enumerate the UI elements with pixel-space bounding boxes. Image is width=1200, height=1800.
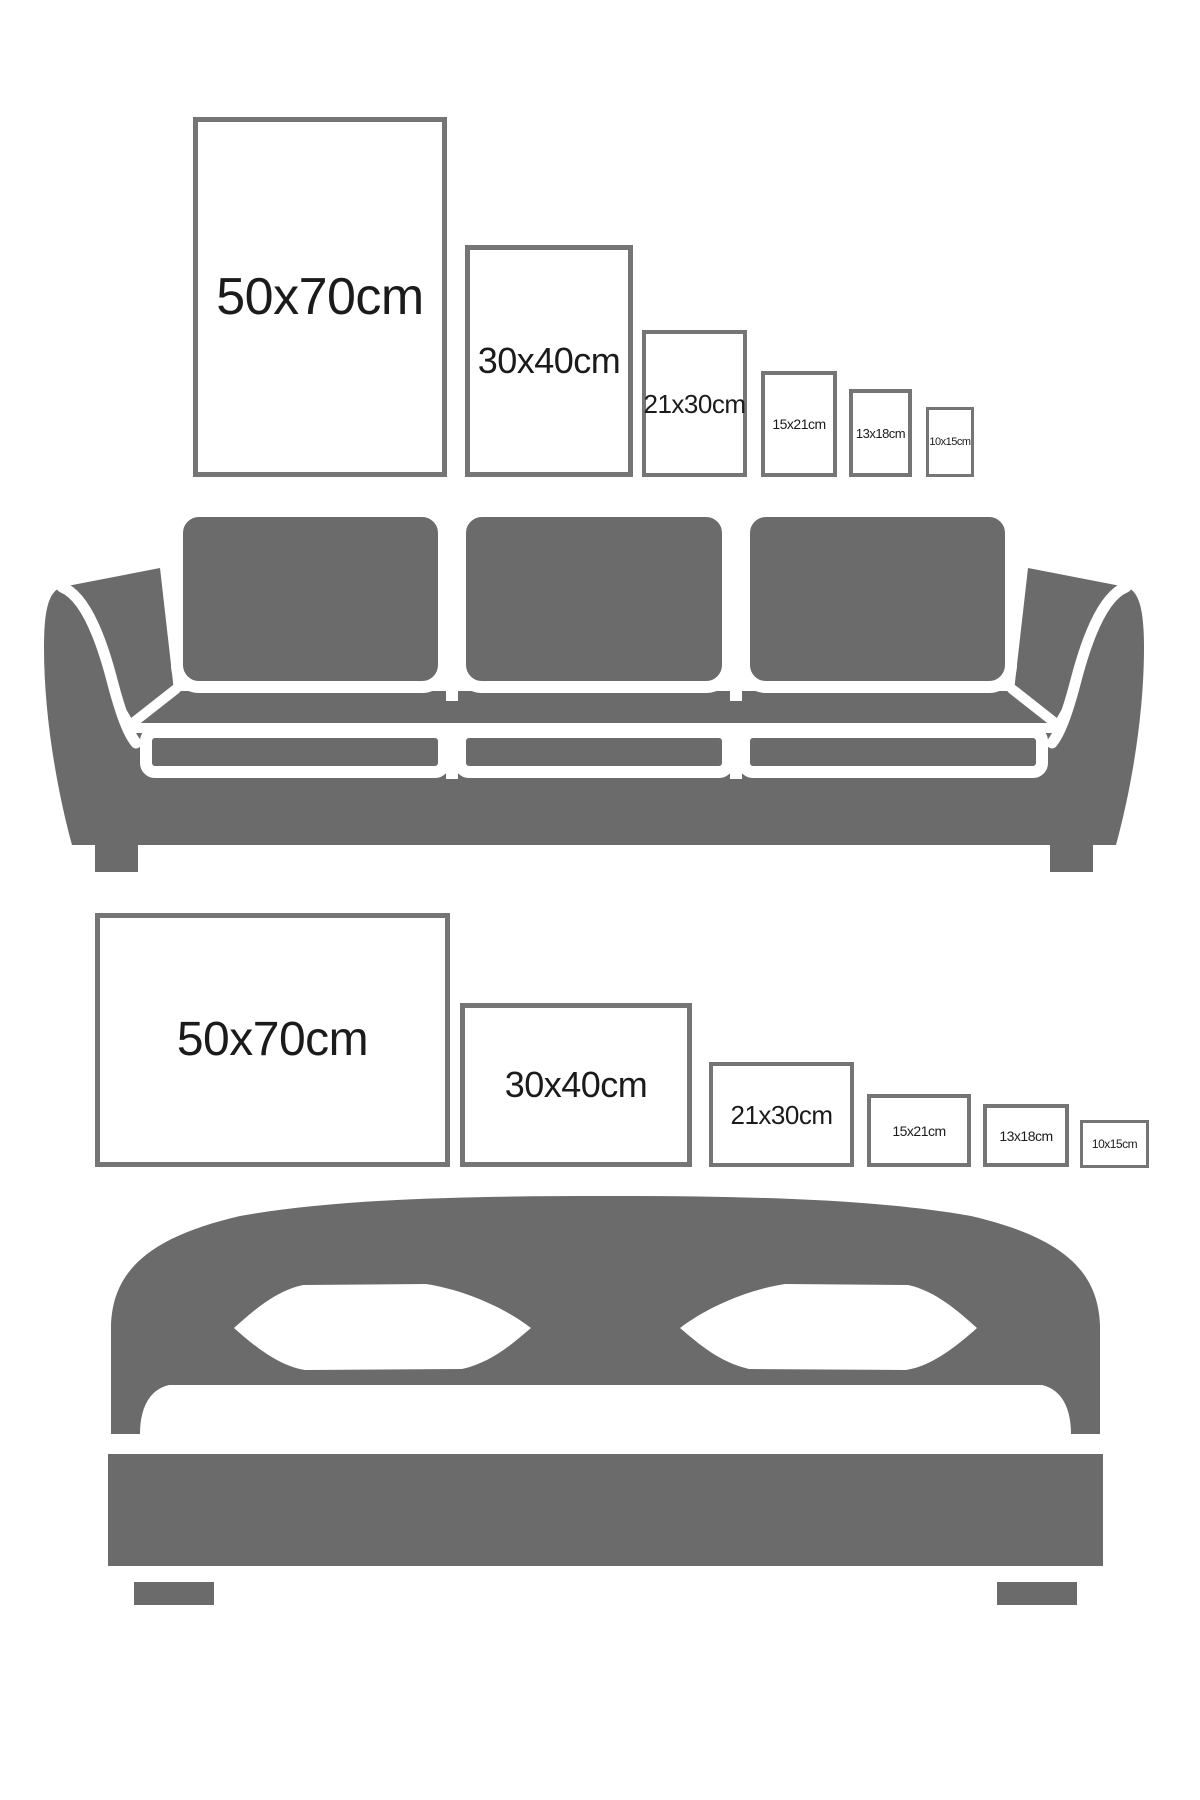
bed-icon: [108, 1196, 1103, 1605]
poster-size-guide: 50x70cm 30x40cm 21x30cm 15x21cm 13x18cm …: [0, 0, 1200, 1800]
sofa-icon: [44, 503, 1144, 872]
furniture-illustrations: [0, 0, 1200, 1800]
